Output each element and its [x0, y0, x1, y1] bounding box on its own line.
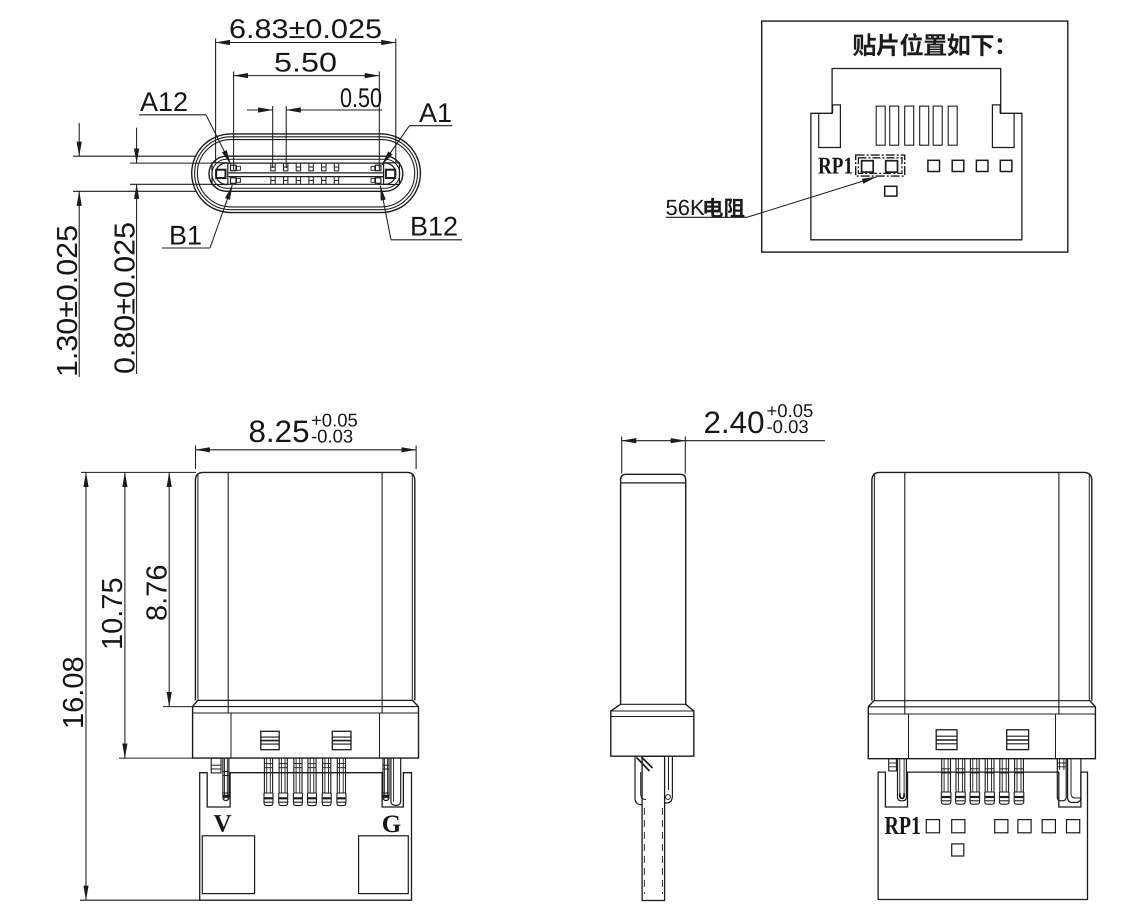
svg-text:A1: A1 — [419, 98, 452, 128]
svg-text:16.08: 16.08 — [58, 656, 90, 729]
svg-text:0.50: 0.50 — [340, 83, 382, 113]
svg-text:-0.03: -0.03 — [311, 426, 353, 447]
svg-text:V: V — [213, 811, 231, 838]
svg-text:56K: 56K — [666, 195, 705, 220]
svg-text:5.50: 5.50 — [274, 48, 337, 78]
svg-text:10.75: 10.75 — [97, 577, 129, 650]
svg-text:RP1: RP1 — [818, 154, 853, 180]
svg-text:A12: A12 — [140, 87, 188, 117]
svg-text:6.83±0.025: 6.83±0.025 — [229, 14, 382, 44]
svg-text:8.25: 8.25 — [249, 414, 310, 449]
svg-text:RP1: RP1 — [885, 811, 922, 840]
svg-text:1.30±0.025: 1.30±0.025 — [52, 225, 84, 377]
svg-text:8.76: 8.76 — [142, 565, 174, 621]
svg-text:B12: B12 — [410, 212, 458, 242]
svg-text:B1: B1 — [169, 221, 202, 251]
svg-text:0.80±0.025: 0.80±0.025 — [110, 222, 142, 374]
svg-text:G: G — [382, 811, 401, 838]
svg-text:-0.03: -0.03 — [767, 416, 809, 437]
svg-text:2.40: 2.40 — [704, 405, 765, 440]
